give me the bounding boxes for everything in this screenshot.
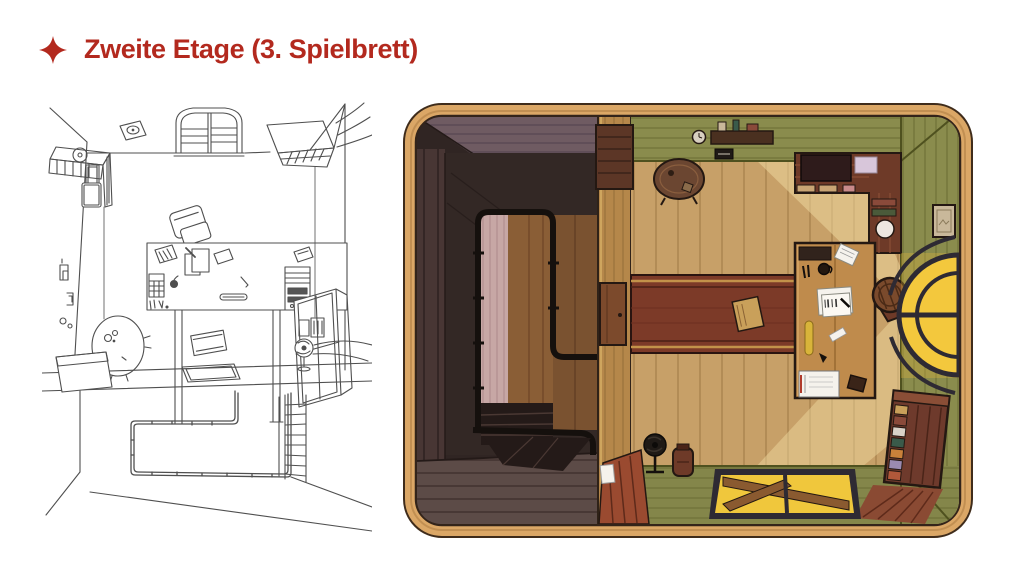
board-bookshelf [884,391,949,488]
four-point-star-icon [38,35,68,65]
sketch-box [56,352,112,392]
concept-sketch-drawing [42,95,372,535]
board-tv [801,155,851,181]
board-desk [795,243,875,398]
game-board-figure [403,103,973,538]
slide-header: Zweite Etage (3. Spielbrett) [38,34,418,65]
board-paper-stack [799,371,839,397]
board-dresser [596,125,633,189]
sketch-crate-box [267,103,372,167]
board-plate [876,220,894,238]
board-stool [673,444,693,476]
board-stair-opening [481,215,598,445]
page-title: Zweite Etage (3. Spielbrett) [84,34,418,65]
board-papers-center [817,287,853,317]
board-desk-tray [799,247,831,260]
sketch-wall-plate [120,121,146,140]
board-book-on-rug [732,297,764,332]
board-stairwell [417,117,598,524]
board-ruler [805,321,813,355]
sketch-ladder [279,395,306,482]
board-notepad [600,464,615,483]
board-picture-frame [933,205,955,237]
sketch-arched-window [174,108,244,156]
board-hatch-door [600,283,626,345]
sketch-left-counter [49,147,112,319]
board-runner-rug [631,275,795,353]
sketch-fallen-book [191,330,227,355]
sketch-wall-items [60,259,73,328]
concept-sketch-figure [42,95,372,535]
board-glass-hatch [709,469,861,519]
board-broom [599,450,649,524]
sketch-chair [168,204,211,248]
sketch-stair-railing [131,391,291,477]
sketch-floor-lines [46,391,372,531]
board-coffee-cup [819,264,830,275]
game-board-painting [403,103,973,538]
board-paper-lavender [855,157,877,173]
